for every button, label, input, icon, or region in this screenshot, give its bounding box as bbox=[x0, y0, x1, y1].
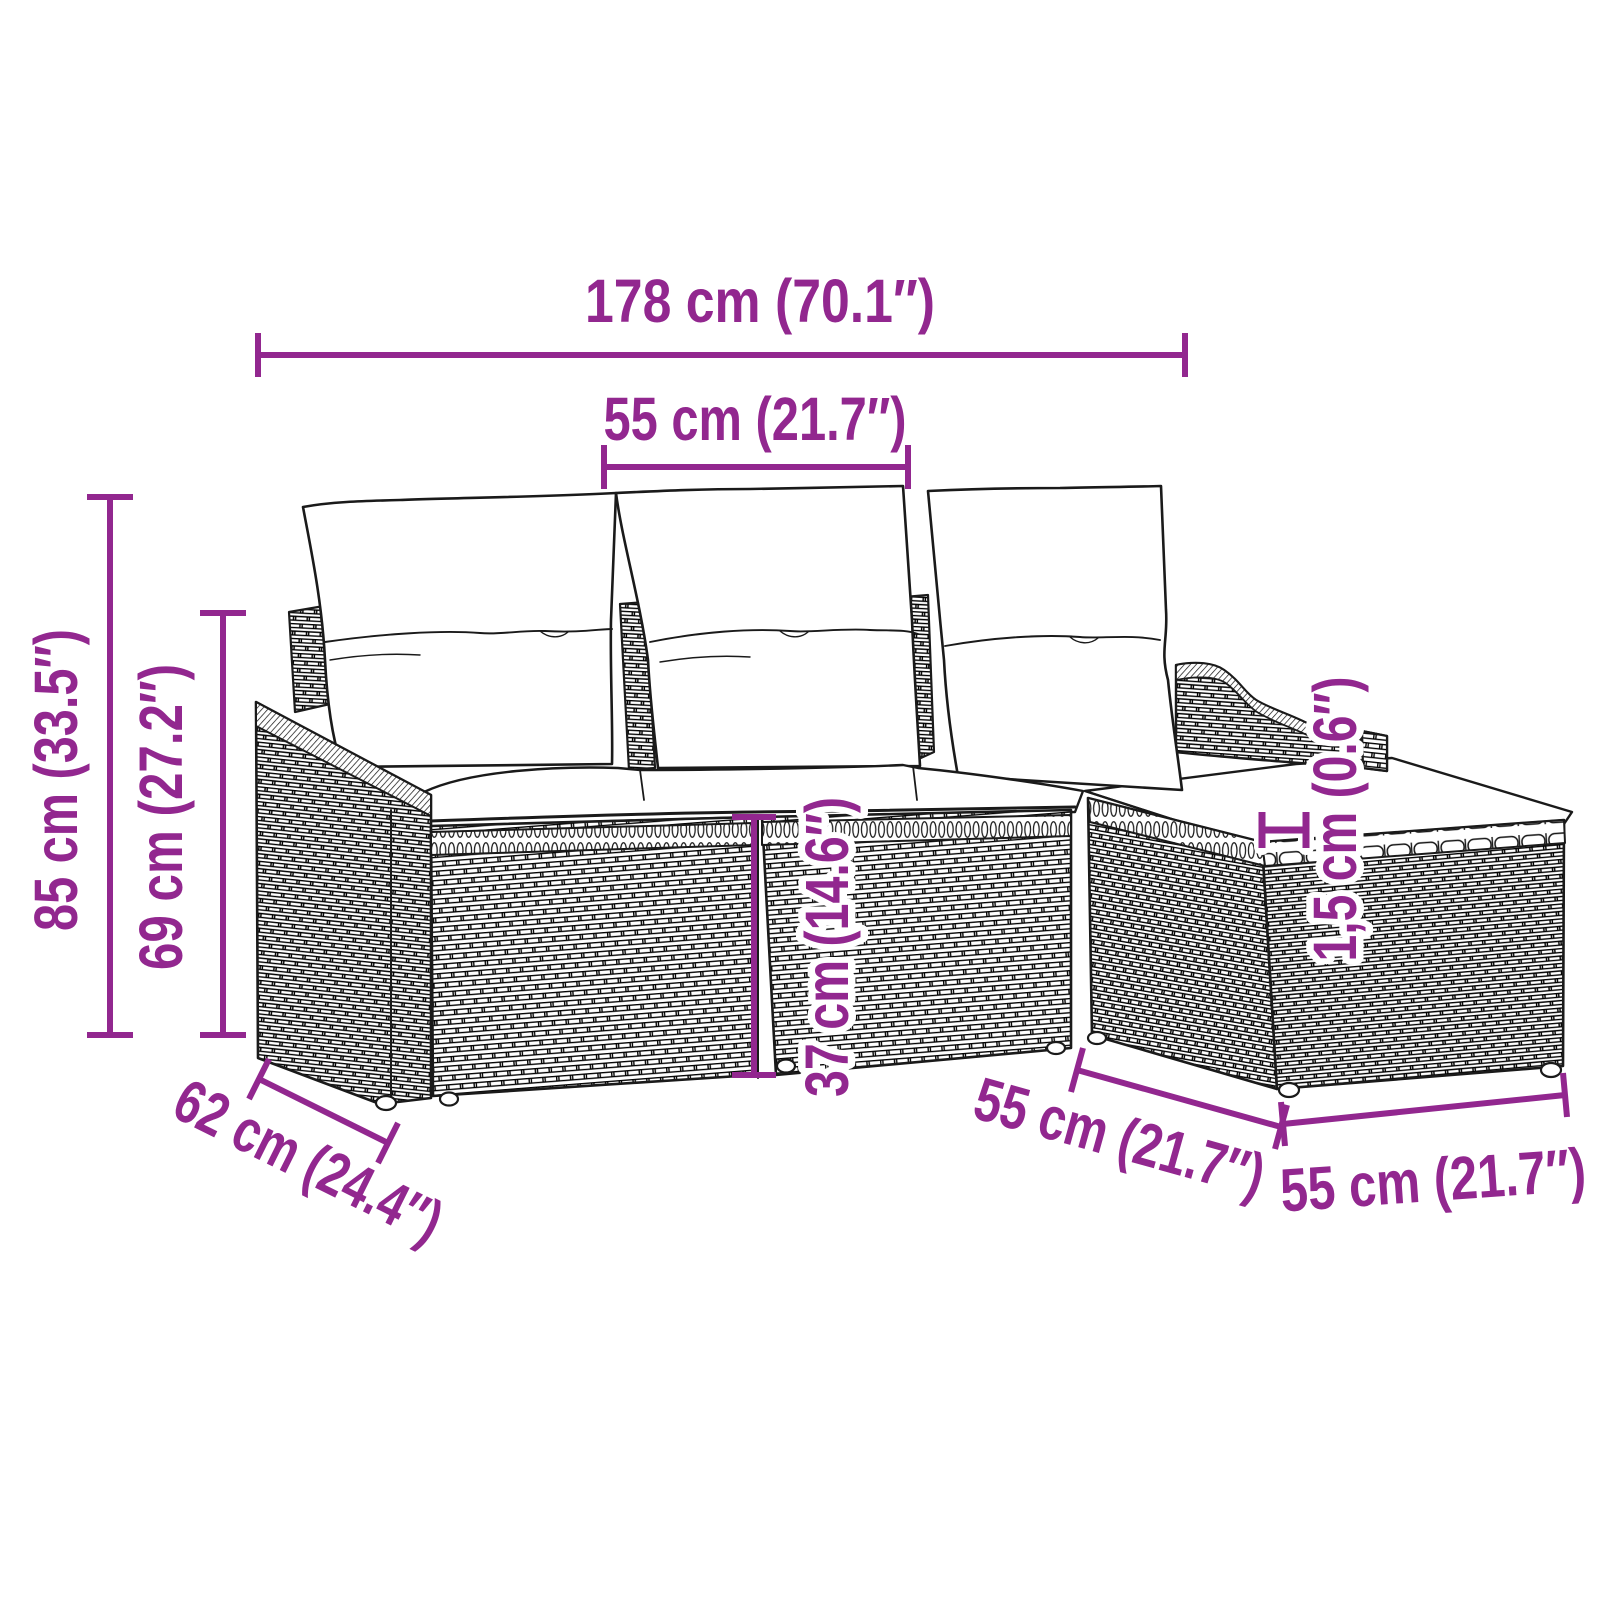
svg-text:85 cm (33.5″): 85 cm (33.5″) bbox=[22, 629, 90, 931]
svg-text:178 cm (70.1″): 178 cm (70.1″) bbox=[585, 267, 935, 335]
svg-text:69 cm (27.2″): 69 cm (27.2″) bbox=[127, 664, 195, 970]
svg-text:37 cm (14.6″): 37 cm (14.6″) bbox=[793, 797, 861, 1097]
svg-text:1,5 cm (0.6″): 1,5 cm (0.6″) bbox=[1301, 677, 1369, 962]
svg-text:55 cm (21.7″): 55 cm (21.7″) bbox=[604, 385, 907, 453]
